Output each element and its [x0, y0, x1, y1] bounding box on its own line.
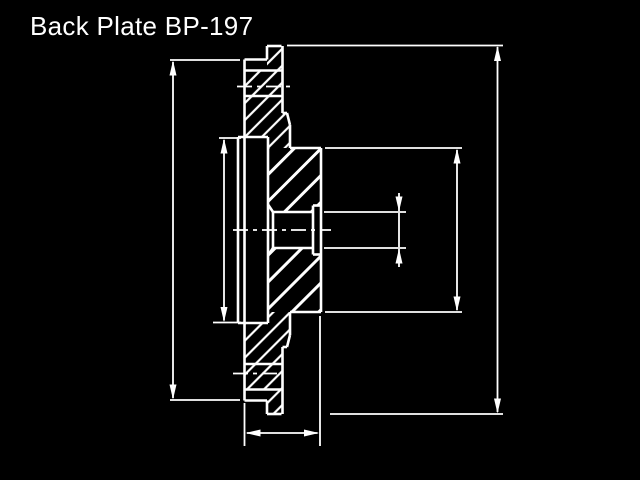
hatch-region: [267, 390, 282, 415]
extension-lines: [170, 46, 503, 447]
arrowhead-down: [170, 385, 177, 400]
arrowhead-left: [246, 430, 261, 437]
arrowhead-down: [454, 297, 461, 312]
drawing-page: Back Plate BP-197: [0, 0, 640, 480]
hatch-region: [267, 46, 282, 71]
dimension-arrowheads: [170, 46, 502, 437]
arrowhead-up: [221, 139, 228, 154]
arrowhead-down: [221, 307, 228, 322]
arrowhead-right: [304, 430, 319, 437]
arrowhead-up: [494, 46, 501, 61]
drawing-svg: [0, 0, 640, 480]
arrowhead-up: [170, 61, 177, 76]
arrowhead-up: [454, 149, 461, 164]
arrowhead-down: [494, 399, 501, 414]
hatch-region: [268, 248, 321, 312]
arrowhead-down: [396, 197, 403, 212]
arrowhead-up: [396, 249, 403, 264]
hatch-region: [268, 148, 321, 212]
dimension-lines: [173, 47, 498, 433]
hatch-region: [245, 71, 283, 97]
section-view: [170, 46, 504, 447]
hatch-region: [245, 364, 283, 390]
